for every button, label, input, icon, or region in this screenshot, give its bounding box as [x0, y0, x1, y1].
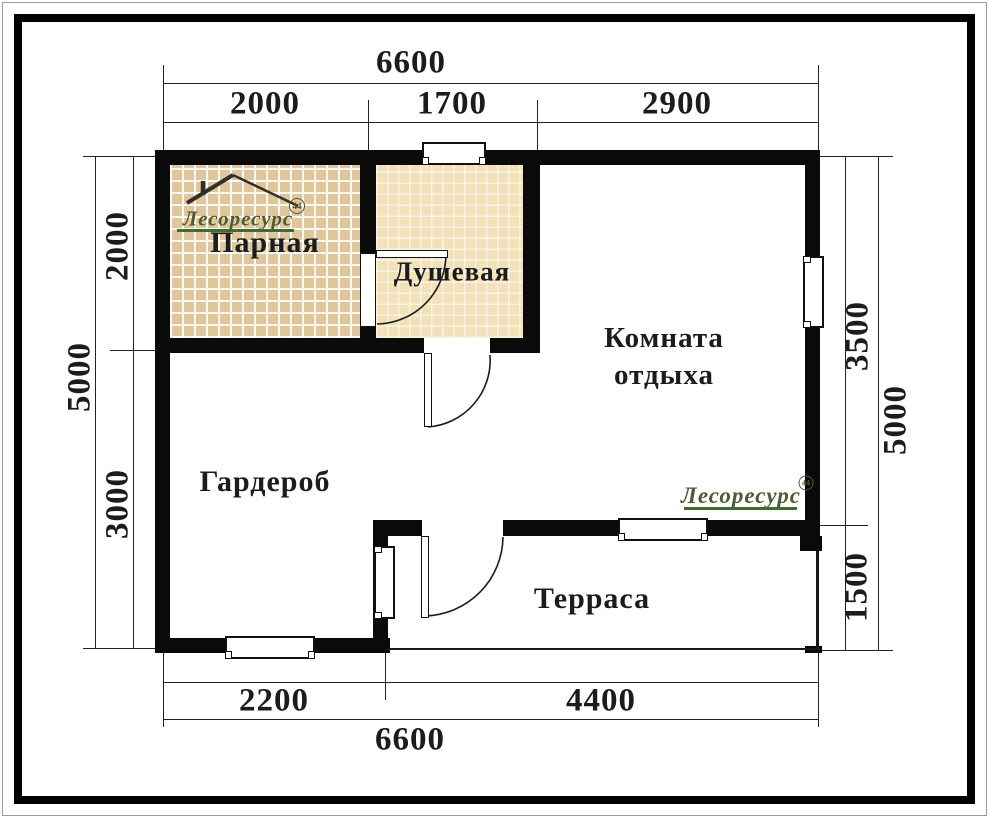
dim-bottom-overall: 6600: [375, 722, 445, 759]
ext-line: [537, 100, 538, 150]
dim-top-segment: 2000: [230, 86, 300, 123]
dim-right-overall: 5000: [878, 385, 915, 455]
room-label-line1: Комната: [604, 320, 724, 357]
dim-top-segment: 2900: [642, 86, 712, 123]
room-label-garderob: Гардероб: [200, 465, 331, 499]
ext-line: [385, 653, 386, 700]
logo-underline: [177, 229, 294, 232]
dim-left-segment: 3000: [100, 469, 137, 539]
room-label-komnata-otdyha: Комната отдыха: [604, 320, 724, 394]
ext-line: [820, 156, 893, 157]
ext-line: [83, 648, 155, 649]
ext-line: [818, 65, 819, 150]
logo-brand-text: Лесоресурс: [183, 207, 293, 232]
dim-top-overall: 6600: [376, 45, 446, 82]
wall-east-stub: [800, 536, 822, 551]
dim-right-segment: 3500: [840, 301, 877, 371]
logo-underline: [684, 507, 797, 510]
door-opening-garderob-terrace: [422, 520, 503, 536]
dim-line-top-overall: [163, 83, 818, 84]
window-garderob-south: [225, 636, 315, 659]
window-garderob-terrace: [374, 546, 395, 619]
dim-bottom-segment: 4400: [566, 683, 636, 720]
door-opening-dushevaya-hall: [424, 338, 490, 353]
logo-badge-44: 44: [289, 198, 305, 214]
ext-line: [163, 65, 164, 150]
dim-right-segment: 1500: [839, 552, 876, 622]
door-leaf-terrace: [421, 536, 429, 618]
dim-top-segment: 1700: [417, 86, 487, 123]
dim-left-segment: 2000: [100, 211, 137, 281]
ext-line: [163, 653, 164, 727]
ext-line: [83, 156, 155, 157]
window-komnata-south: [618, 518, 708, 541]
door-opening-parnaya-dushevaya: [360, 253, 376, 327]
dim-bottom-segment: 2200: [239, 683, 309, 720]
terrace-edge-south: [388, 648, 820, 650]
dim-left-overall: 5000: [62, 342, 99, 412]
wall-north: [155, 150, 820, 165]
wall-dushevaya-east: [523, 150, 540, 353]
logo-badge-44: 44: [799, 476, 814, 491]
terrace-edge-east: [816, 551, 819, 650]
door-leaf-dushevaya: [424, 353, 432, 427]
ext-line: [368, 100, 369, 150]
ext-line: [820, 525, 868, 526]
room-label-dushevaya: Душевая: [394, 257, 511, 288]
ext-line: [822, 650, 893, 651]
window-dushevaya-north: [422, 142, 486, 165]
window-komnata-east: [803, 256, 824, 328]
logo-brand-text: Лесоресурс: [681, 483, 801, 509]
room-label-terrasa: Терраса: [534, 582, 650, 616]
wall-west: [155, 150, 170, 653]
floor-plan: 6600 2000 1700 2900 2200 4400 6600 5000 …: [0, 0, 989, 818]
ext-line: [818, 653, 819, 727]
room-label-line2: отдыха: [604, 357, 724, 394]
